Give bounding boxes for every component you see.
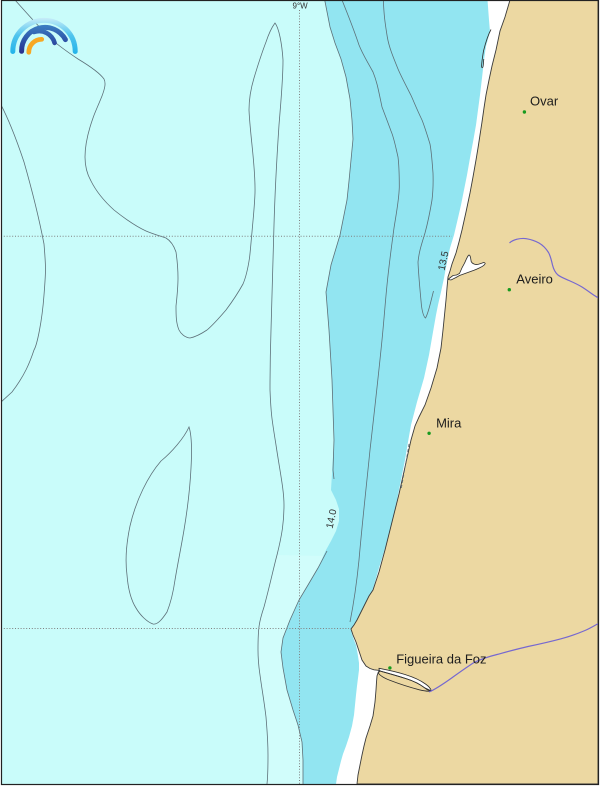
svg-text:Figueira da Foz: Figueira da Foz [396,652,486,667]
svg-text:Aveiro: Aveiro [516,272,553,287]
svg-text:Mira: Mira [436,415,462,430]
svg-text:9°W: 9°W [293,2,309,11]
svg-text:Ovar: Ovar [530,94,559,109]
